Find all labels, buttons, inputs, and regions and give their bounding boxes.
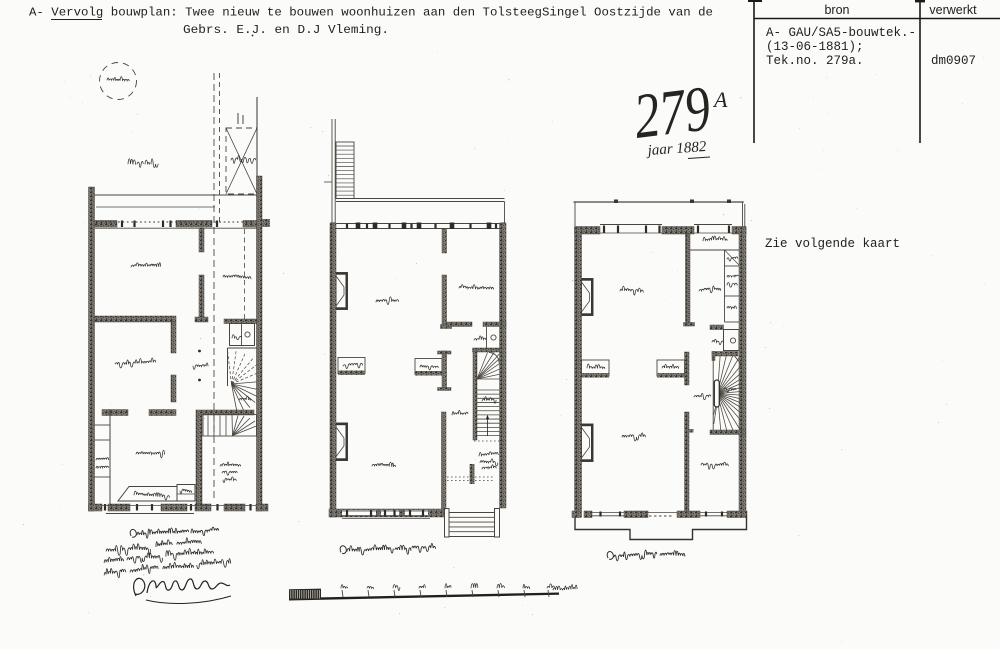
svg-text:A- Vervolg bouwplan: Twee nieu: A- Vervolg bouwplan: Twee nieuw te bouwe… [29,6,713,20]
svg-text:A: A [712,87,728,112]
svg-text:A- GAU/SA5-bouwtek.-: A- GAU/SA5-bouwtek.- [766,26,916,40]
svg-text:(13-06-1881);: (13-06-1881); [766,40,864,54]
svg-text:dm0907: dm0907 [931,54,976,68]
svg-text:Zie volgende kaart: Zie volgende kaart [765,237,900,251]
svg-text:verwerkt: verwerkt [929,3,977,17]
svg-text:Tek.no. 279a.: Tek.no. 279a. [766,54,864,68]
svg-text:Gebrs. E.J. en D.J Vleming.: Gebrs. E.J. en D.J Vleming. [183,23,389,37]
svg-text:bron: bron [824,3,849,17]
